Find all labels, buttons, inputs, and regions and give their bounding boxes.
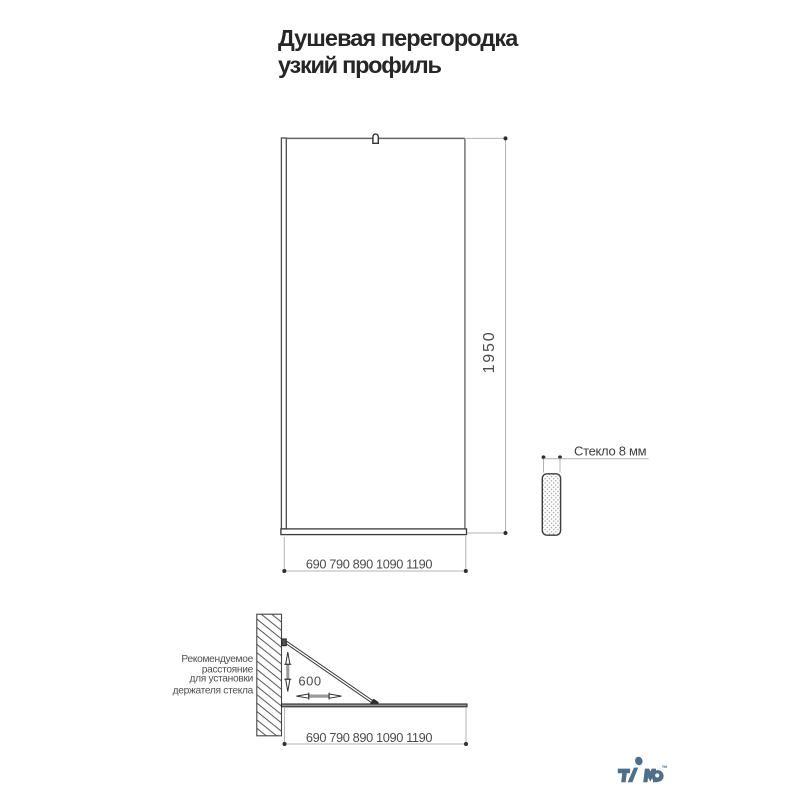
svg-text:690 790 890 1090 1190: 690 790 890 1090 1190 xyxy=(306,557,433,572)
svg-text:для установки: для установки xyxy=(190,674,253,685)
svg-text:1950: 1950 xyxy=(481,331,498,374)
svg-text:держателя стекла: держателя стекла xyxy=(173,686,254,697)
svg-text:600: 600 xyxy=(298,673,321,688)
svg-text:Стекло 8 мм: Стекло 8 мм xyxy=(574,443,647,458)
svg-text:Душевая перегородка: Душевая перегородка xyxy=(278,25,519,51)
svg-text:690 790 890 1090 1190: 690 790 890 1090 1190 xyxy=(306,730,433,745)
svg-text:Рекомендуемое: Рекомендуемое xyxy=(181,654,253,665)
svg-text:узкий профиль: узкий профиль xyxy=(278,52,441,78)
